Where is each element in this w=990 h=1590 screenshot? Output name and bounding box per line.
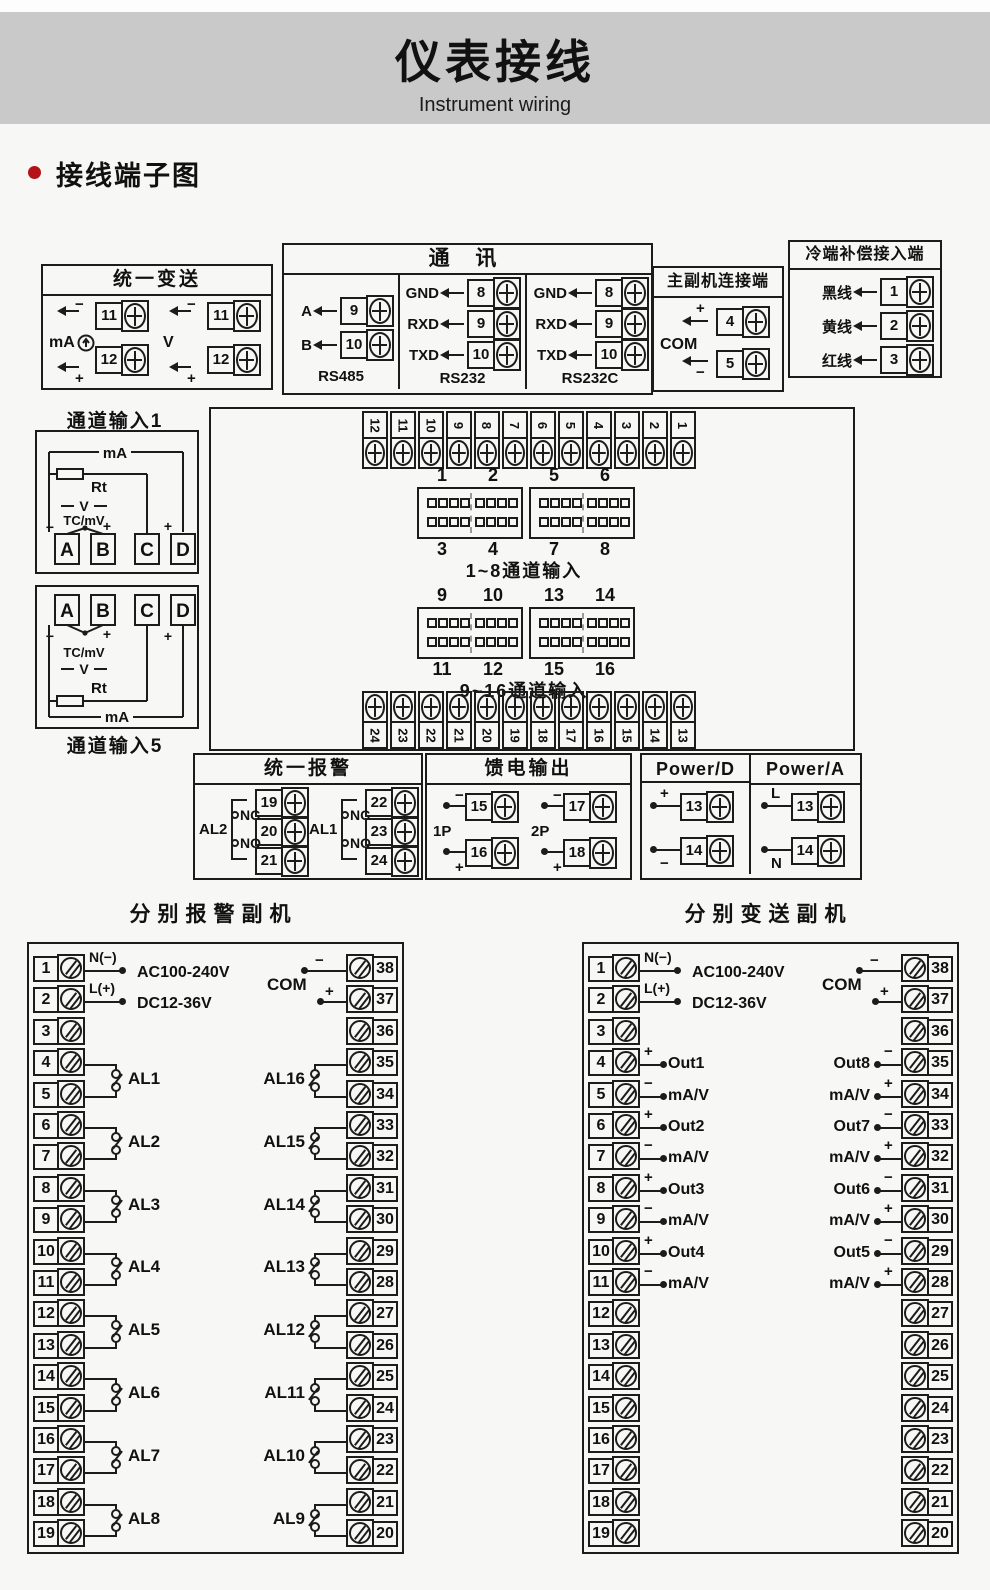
arrow-left-icon bbox=[59, 310, 79, 312]
minus-sign: − bbox=[884, 1169, 893, 1186]
screw-terminal-icon bbox=[612, 1362, 640, 1390]
connector-pin bbox=[427, 498, 437, 508]
screw-terminal-icon bbox=[362, 691, 388, 723]
output-label: mA/V bbox=[806, 1087, 870, 1105]
terminal-number: 24 bbox=[372, 1396, 398, 1422]
idc-connector bbox=[529, 487, 635, 539]
screw-terminal-icon bbox=[57, 1205, 85, 1233]
screw-terminal-icon bbox=[57, 954, 85, 982]
terminal-number-text: 15 bbox=[620, 728, 635, 742]
alarm-label: AL3 bbox=[128, 1196, 160, 1214]
junction-dot bbox=[660, 1093, 667, 1100]
junction-dot bbox=[660, 1155, 667, 1162]
wire bbox=[878, 1158, 901, 1160]
box-master-slave: 主副机连接端 COM + 4 − 5 bbox=[652, 266, 784, 392]
screw-terminal-icon bbox=[901, 1519, 929, 1547]
junction-dot bbox=[874, 1218, 881, 1225]
connector-pin bbox=[508, 618, 518, 628]
junction-dot bbox=[874, 1250, 881, 1257]
terminal-number: 2 bbox=[880, 312, 908, 340]
terminal-number: 11 bbox=[207, 302, 235, 330]
screw-terminal-icon bbox=[670, 691, 696, 723]
channel-number: 13 bbox=[539, 585, 569, 606]
screw-terminal-icon bbox=[346, 1111, 374, 1139]
terminal-number: 17 bbox=[33, 1458, 59, 1484]
idc-connector bbox=[417, 487, 523, 539]
com-label: COM bbox=[267, 976, 307, 994]
output-label: mA/V bbox=[806, 1212, 870, 1230]
terminal-number: 15 bbox=[614, 721, 640, 749]
screw-terminal-icon bbox=[901, 1142, 929, 1170]
minus-sign: − bbox=[884, 1043, 893, 1060]
connector-pin bbox=[438, 637, 448, 647]
screw-terminal-icon bbox=[346, 1331, 374, 1359]
plus-sign: + bbox=[644, 1106, 653, 1123]
pin-label: RXD bbox=[403, 316, 439, 333]
rt-label: Rt bbox=[91, 680, 107, 697]
screw-terminal-icon bbox=[57, 1268, 85, 1296]
connector-pin bbox=[438, 517, 448, 527]
wire bbox=[85, 1064, 117, 1066]
screw-terminal-icon bbox=[57, 1394, 85, 1422]
output-label: Out6 bbox=[806, 1181, 870, 1199]
screw-terminal-icon bbox=[906, 344, 934, 376]
terminal-number: 11 bbox=[588, 1270, 614, 1296]
wire bbox=[306, 970, 346, 972]
wire bbox=[878, 1190, 901, 1192]
screw-terminal-icon bbox=[233, 344, 261, 376]
screw-terminal-icon bbox=[57, 1142, 85, 1170]
connector-pin bbox=[438, 618, 448, 628]
screw-terminal-icon bbox=[346, 1425, 374, 1453]
arrow-left-icon bbox=[442, 323, 464, 325]
ma-label: mA bbox=[103, 445, 127, 462]
connector-pin bbox=[550, 637, 560, 647]
screw-terminal-icon bbox=[346, 1174, 374, 1202]
screw-terminal-icon bbox=[612, 1205, 640, 1233]
terminal-number: 4 bbox=[588, 1050, 614, 1076]
terminal-number: 15 bbox=[465, 793, 493, 821]
wire bbox=[877, 1001, 901, 1003]
screw-terminal-icon bbox=[57, 1111, 85, 1139]
terminal-letter: C bbox=[140, 601, 154, 622]
wire bbox=[314, 1064, 346, 1066]
screw-terminal-icon bbox=[502, 691, 528, 723]
screw-terminal-icon bbox=[901, 1174, 929, 1202]
terminal-number: 22 bbox=[927, 1458, 953, 1484]
connector-pin bbox=[460, 498, 470, 508]
page: 仪表接线 Instrument wiring 接线端子图 统一变送 − mA +… bbox=[0, 0, 990, 1590]
arrow-left-icon bbox=[855, 291, 877, 293]
com-label: COM bbox=[822, 976, 862, 994]
plus-sign: + bbox=[644, 1043, 653, 1060]
box-feed-output: 馈电输出 1P − 15 + 16 2P − 17 + 18 bbox=[425, 753, 632, 880]
arrow-left-icon bbox=[570, 323, 592, 325]
screw-terminal-icon bbox=[901, 1488, 929, 1516]
terminal-number: 20 bbox=[927, 1521, 953, 1547]
pin-label: RXD bbox=[531, 316, 567, 333]
terminal-number: 9 bbox=[588, 1207, 614, 1233]
terminal-letter: A bbox=[60, 540, 74, 561]
slave-alarm-title: 分别报警副机 bbox=[27, 898, 400, 928]
terminal-number: 7 bbox=[588, 1144, 614, 1170]
terminal-number: 1 bbox=[33, 956, 59, 982]
terminal-number: 33 bbox=[927, 1113, 953, 1139]
terminal-number: 22 bbox=[418, 721, 444, 749]
line-sign: L bbox=[771, 785, 780, 802]
screw-terminal-icon bbox=[612, 1080, 640, 1108]
connector-pin bbox=[427, 618, 437, 628]
wire bbox=[314, 1441, 346, 1443]
wire bbox=[763, 805, 791, 807]
terminal-number: 9 bbox=[33, 1207, 59, 1233]
connector-pin bbox=[486, 498, 496, 508]
plus-sign: + bbox=[696, 300, 705, 317]
plus-sign: + bbox=[164, 518, 172, 534]
connector-pin bbox=[475, 637, 485, 647]
screw-terminal-icon bbox=[901, 1456, 929, 1484]
terminal-letter: A bbox=[60, 601, 74, 622]
arrow-left-icon bbox=[855, 325, 877, 327]
screw-terminal-icon bbox=[391, 845, 419, 877]
junction-dot bbox=[660, 1124, 667, 1131]
terminal-number: 12 bbox=[95, 346, 123, 374]
plus-sign: + bbox=[644, 1169, 653, 1186]
screw-terminal-icon bbox=[612, 1456, 640, 1484]
junction-dot bbox=[874, 1093, 881, 1100]
channel1-wiring: mA Rt V TC/mV − + + A B C D bbox=[37, 432, 197, 572]
section-heading: 接线端子图 bbox=[56, 154, 201, 193]
screw-terminal-icon bbox=[612, 1268, 640, 1296]
junction-dot bbox=[874, 1124, 881, 1131]
wire bbox=[445, 805, 465, 807]
pin-label: A bbox=[284, 303, 312, 320]
plus-sign: + bbox=[325, 983, 334, 1000]
terminal-number: 6 bbox=[588, 1113, 614, 1139]
screw-terminal-icon bbox=[612, 1425, 640, 1453]
terminal-letter: D bbox=[176, 601, 190, 622]
wire bbox=[85, 1127, 117, 1129]
terminal-number: 21 bbox=[372, 1490, 398, 1516]
screw-terminal-icon bbox=[817, 791, 845, 823]
box-title: 统一报警 bbox=[195, 755, 421, 785]
tc-label: TC/mV bbox=[63, 645, 105, 660]
terminal-number: 6 bbox=[33, 1113, 59, 1139]
terminal-strip-bottom: 242322212019181716151413 bbox=[362, 691, 698, 747]
terminal-number: 32 bbox=[927, 1144, 953, 1170]
terminal-number: 24 bbox=[362, 721, 388, 749]
connector-pin bbox=[539, 498, 549, 508]
terminal-number: 16 bbox=[588, 1427, 614, 1453]
output-label: Out7 bbox=[806, 1118, 870, 1136]
terminal-number: 8 bbox=[467, 279, 495, 307]
output-label: mA/V bbox=[668, 1149, 709, 1167]
alarm-label: AL2 bbox=[199, 821, 227, 838]
screw-terminal-icon bbox=[281, 845, 309, 877]
wire bbox=[314, 1096, 346, 1098]
connector-pin bbox=[497, 618, 507, 628]
pin-label: TXD bbox=[403, 347, 439, 364]
box-title: 冷端补偿接入端 bbox=[790, 242, 940, 270]
power-d-body: + 13 − 14 bbox=[642, 785, 749, 874]
page-subtitle: Instrument wiring bbox=[0, 94, 990, 117]
wire bbox=[878, 1064, 901, 1066]
connector-pin bbox=[508, 517, 518, 527]
terminal-number: 24 bbox=[365, 847, 393, 875]
output-label: Out1 bbox=[668, 1055, 704, 1073]
screw-terminal-icon bbox=[493, 277, 521, 309]
terminal-number: 22 bbox=[372, 1458, 398, 1484]
wire bbox=[640, 970, 678, 972]
plus-sign: + bbox=[455, 859, 464, 876]
terminal-number: 13 bbox=[33, 1333, 59, 1359]
connector-pin bbox=[609, 517, 619, 527]
terminal-number-text: 23 bbox=[396, 728, 411, 742]
screw-terminal-icon bbox=[901, 1394, 929, 1422]
screw-terminal-icon bbox=[742, 306, 770, 338]
v-label: V bbox=[79, 498, 89, 514]
wire bbox=[231, 858, 247, 860]
terminal-number: 10 bbox=[467, 341, 495, 369]
output-label: Out8 bbox=[806, 1055, 870, 1073]
comm-col-rs232c: GND8 RXD9 TXD10 RS232C bbox=[525, 275, 653, 389]
output-label: Out3 bbox=[668, 1181, 704, 1199]
alarm-label: AL15 bbox=[257, 1133, 305, 1151]
terminal-number: 34 bbox=[372, 1082, 398, 1108]
terminal-number: 12 bbox=[33, 1301, 59, 1327]
terminal-number: 16 bbox=[465, 839, 493, 867]
box-slave-alarm: 1234567891011121314151617181938373635343… bbox=[27, 942, 404, 1554]
terminal-number: 16 bbox=[586, 721, 612, 749]
connector-pin bbox=[449, 498, 459, 508]
connector-pin bbox=[572, 618, 582, 628]
wire bbox=[314, 1472, 346, 1474]
terminal-number: 21 bbox=[927, 1490, 953, 1516]
terminal-number: 17 bbox=[588, 1458, 614, 1484]
screw-terminal-icon bbox=[901, 954, 929, 982]
terminal-number: 20 bbox=[474, 721, 500, 749]
l-label: L(+) bbox=[89, 979, 115, 997]
plus-sign: + bbox=[75, 370, 84, 387]
junction-dot bbox=[874, 1061, 881, 1068]
screw-terminal-icon bbox=[612, 985, 640, 1013]
terminal-number: 10 bbox=[33, 1239, 59, 1265]
screw-terminal-icon bbox=[901, 1299, 929, 1327]
connector-pin bbox=[587, 517, 597, 527]
screw-terminal-icon bbox=[281, 816, 309, 848]
alarm-label: AL12 bbox=[257, 1321, 305, 1339]
arrow-left-icon bbox=[315, 310, 337, 312]
terminal-number-text: 18 bbox=[536, 728, 551, 742]
terminal-number: 19 bbox=[33, 1521, 59, 1547]
pin-label: 红线 bbox=[818, 350, 852, 371]
pin-label: 黑线 bbox=[818, 282, 852, 303]
connector-pin bbox=[598, 637, 608, 647]
comm-caption: RS232C bbox=[527, 370, 653, 387]
connector-pin bbox=[475, 517, 485, 527]
divider bbox=[749, 783, 751, 874]
minus-sign: − bbox=[870, 952, 879, 969]
terminal-number: 20 bbox=[372, 1521, 398, 1547]
terminal-letter: B bbox=[96, 540, 110, 561]
terminal-number: 29 bbox=[372, 1239, 398, 1265]
terminal-number: 1 bbox=[588, 956, 614, 982]
terminal-number: 13 bbox=[791, 793, 819, 821]
screw-terminal-icon bbox=[346, 1237, 374, 1265]
terminal-number-text: 24 bbox=[368, 728, 383, 742]
box-channel-terminals: 121110987654321 13245768911101213151416 … bbox=[209, 407, 855, 751]
connector-pin bbox=[609, 498, 619, 508]
output-label: mA/V bbox=[668, 1212, 709, 1230]
terminal-number: 20 bbox=[255, 818, 283, 846]
connector-pin bbox=[572, 637, 582, 647]
connector-pin bbox=[508, 498, 518, 508]
terminal-number: 14 bbox=[680, 837, 708, 865]
screw-terminal-icon bbox=[346, 1205, 374, 1233]
screw-terminal-icon bbox=[901, 1237, 929, 1265]
arrow-left-icon bbox=[171, 366, 191, 368]
wire bbox=[314, 1158, 346, 1160]
junction-dot bbox=[119, 967, 126, 974]
terminal-number-text: 16 bbox=[592, 728, 607, 742]
connector-pin bbox=[561, 517, 571, 527]
arrow-left-icon bbox=[684, 360, 708, 362]
terminal-letter: C bbox=[140, 540, 154, 561]
box-title: 主副机连接端 bbox=[654, 268, 782, 298]
comm-col-rs232: GND8 RXD9 TXD10 RS232 bbox=[398, 275, 525, 389]
plus-sign: + bbox=[880, 983, 889, 1000]
screw-terminal-icon bbox=[57, 1174, 85, 1202]
terminal-number: 8 bbox=[588, 1176, 614, 1202]
terminal-number: 16 bbox=[33, 1427, 59, 1453]
minus-sign: − bbox=[644, 1263, 653, 1280]
box-unified-alarm: 统一报警 AL2 NC NO 19 20 21 AL1 NC NO 22 23 … bbox=[193, 753, 423, 880]
wire bbox=[314, 1253, 346, 1255]
screw-terminal-icon bbox=[57, 1362, 85, 1390]
screw-terminal-icon bbox=[391, 787, 419, 819]
screw-terminal-icon bbox=[906, 310, 934, 342]
junction-dot bbox=[674, 998, 681, 1005]
wire bbox=[543, 851, 563, 853]
arrow-left-icon bbox=[315, 344, 337, 346]
terminal-number: 25 bbox=[372, 1364, 398, 1390]
terminal-number: 37 bbox=[372, 987, 398, 1013]
screw-terminal-icon bbox=[57, 1456, 85, 1484]
terminal-number: 5 bbox=[33, 1082, 59, 1108]
output-label: Out4 bbox=[668, 1244, 704, 1262]
power-a-body: L 13 N 14 bbox=[753, 785, 860, 874]
screw-terminal-icon bbox=[612, 1519, 640, 1547]
terminal-number: 14 bbox=[588, 1364, 614, 1390]
alarm-label: AL7 bbox=[128, 1447, 160, 1465]
l-label: L(+) bbox=[644, 979, 670, 997]
plus-sign: + bbox=[553, 859, 562, 876]
screw-terminal-icon bbox=[901, 1362, 929, 1390]
terminal-number: 14 bbox=[642, 721, 668, 749]
terminal-number: 10 bbox=[595, 341, 623, 369]
terminal-number: 18 bbox=[530, 721, 556, 749]
terminal-number: 5 bbox=[716, 350, 744, 378]
wire bbox=[878, 1127, 901, 1129]
terminal-number: 33 bbox=[372, 1113, 398, 1139]
circuit-v: − V + 11 12 bbox=[161, 296, 265, 388]
terminal-number: 17 bbox=[563, 793, 591, 821]
channel1-title: 通道输入1 bbox=[35, 406, 195, 433]
terminal-number: 7 bbox=[33, 1144, 59, 1170]
arrow-left-icon bbox=[442, 354, 464, 356]
junction-dot bbox=[119, 998, 126, 1005]
caption-ch1-8: 1~8通道输入 bbox=[417, 557, 631, 583]
terminal-number: 15 bbox=[588, 1396, 614, 1422]
arrow-left-icon bbox=[570, 354, 592, 356]
wire bbox=[652, 849, 680, 851]
junction-dot bbox=[674, 967, 681, 974]
terminal-number: 10 bbox=[588, 1239, 614, 1265]
screw-terminal-icon bbox=[586, 691, 612, 723]
screw-terminal-icon bbox=[57, 1299, 85, 1327]
arrow-left-icon bbox=[855, 359, 877, 361]
connector-pin bbox=[486, 637, 496, 647]
bullet-icon bbox=[28, 166, 41, 179]
ac-rating: AC100-240V bbox=[137, 964, 230, 982]
alarm-label: AL1 bbox=[128, 1070, 160, 1088]
terminal-number: 19 bbox=[588, 1521, 614, 1547]
ma-label: mA bbox=[105, 709, 129, 726]
screw-terminal-icon bbox=[346, 1080, 374, 1108]
wire bbox=[543, 805, 563, 807]
plus-sign: + bbox=[103, 518, 111, 534]
channel-number: 5 bbox=[539, 465, 569, 486]
terminal-number: 9 bbox=[467, 310, 495, 338]
wire bbox=[445, 851, 465, 853]
terminal-number: 21 bbox=[446, 721, 472, 749]
connector-pin bbox=[497, 517, 507, 527]
terminal-number: 17 bbox=[558, 721, 584, 749]
connector-pin bbox=[497, 637, 507, 647]
terminal-number-text: 22 bbox=[424, 728, 439, 742]
terminal-number: 3 bbox=[588, 1019, 614, 1045]
screw-terminal-icon bbox=[742, 348, 770, 380]
channel-number: 6 bbox=[590, 465, 620, 486]
circuit-label: V bbox=[163, 334, 174, 352]
wire bbox=[640, 1001, 678, 1003]
terminal-number: 24 bbox=[927, 1396, 953, 1422]
screw-terminal-icon bbox=[346, 1017, 374, 1045]
terminal-letter: D bbox=[176, 540, 190, 561]
arrow-left-icon bbox=[684, 320, 708, 322]
connector-pin bbox=[609, 637, 619, 647]
terminal-number: 18 bbox=[588, 1490, 614, 1516]
terminal-number: 12 bbox=[207, 346, 235, 374]
connector-pin bbox=[486, 618, 496, 628]
wire bbox=[652, 805, 680, 807]
alarm-label: AL8 bbox=[128, 1510, 160, 1528]
connector-pin bbox=[587, 498, 597, 508]
minus-sign: − bbox=[644, 1075, 653, 1092]
connector-pin bbox=[561, 637, 571, 647]
terminal-number: 18 bbox=[563, 839, 591, 867]
box-channel-input-1: mA Rt V TC/mV − + + A B C D bbox=[35, 430, 199, 574]
terminal-number: 8 bbox=[595, 279, 623, 307]
connector-pin bbox=[572, 517, 582, 527]
minus-sign: − bbox=[644, 1200, 653, 1217]
output-label: mA/V bbox=[668, 1087, 709, 1105]
screw-terminal-icon bbox=[57, 1425, 85, 1453]
minus-sign: − bbox=[455, 787, 464, 804]
alarm-label: AL13 bbox=[257, 1258, 305, 1276]
wire bbox=[85, 1253, 117, 1255]
circuit-label: mA bbox=[49, 334, 75, 352]
